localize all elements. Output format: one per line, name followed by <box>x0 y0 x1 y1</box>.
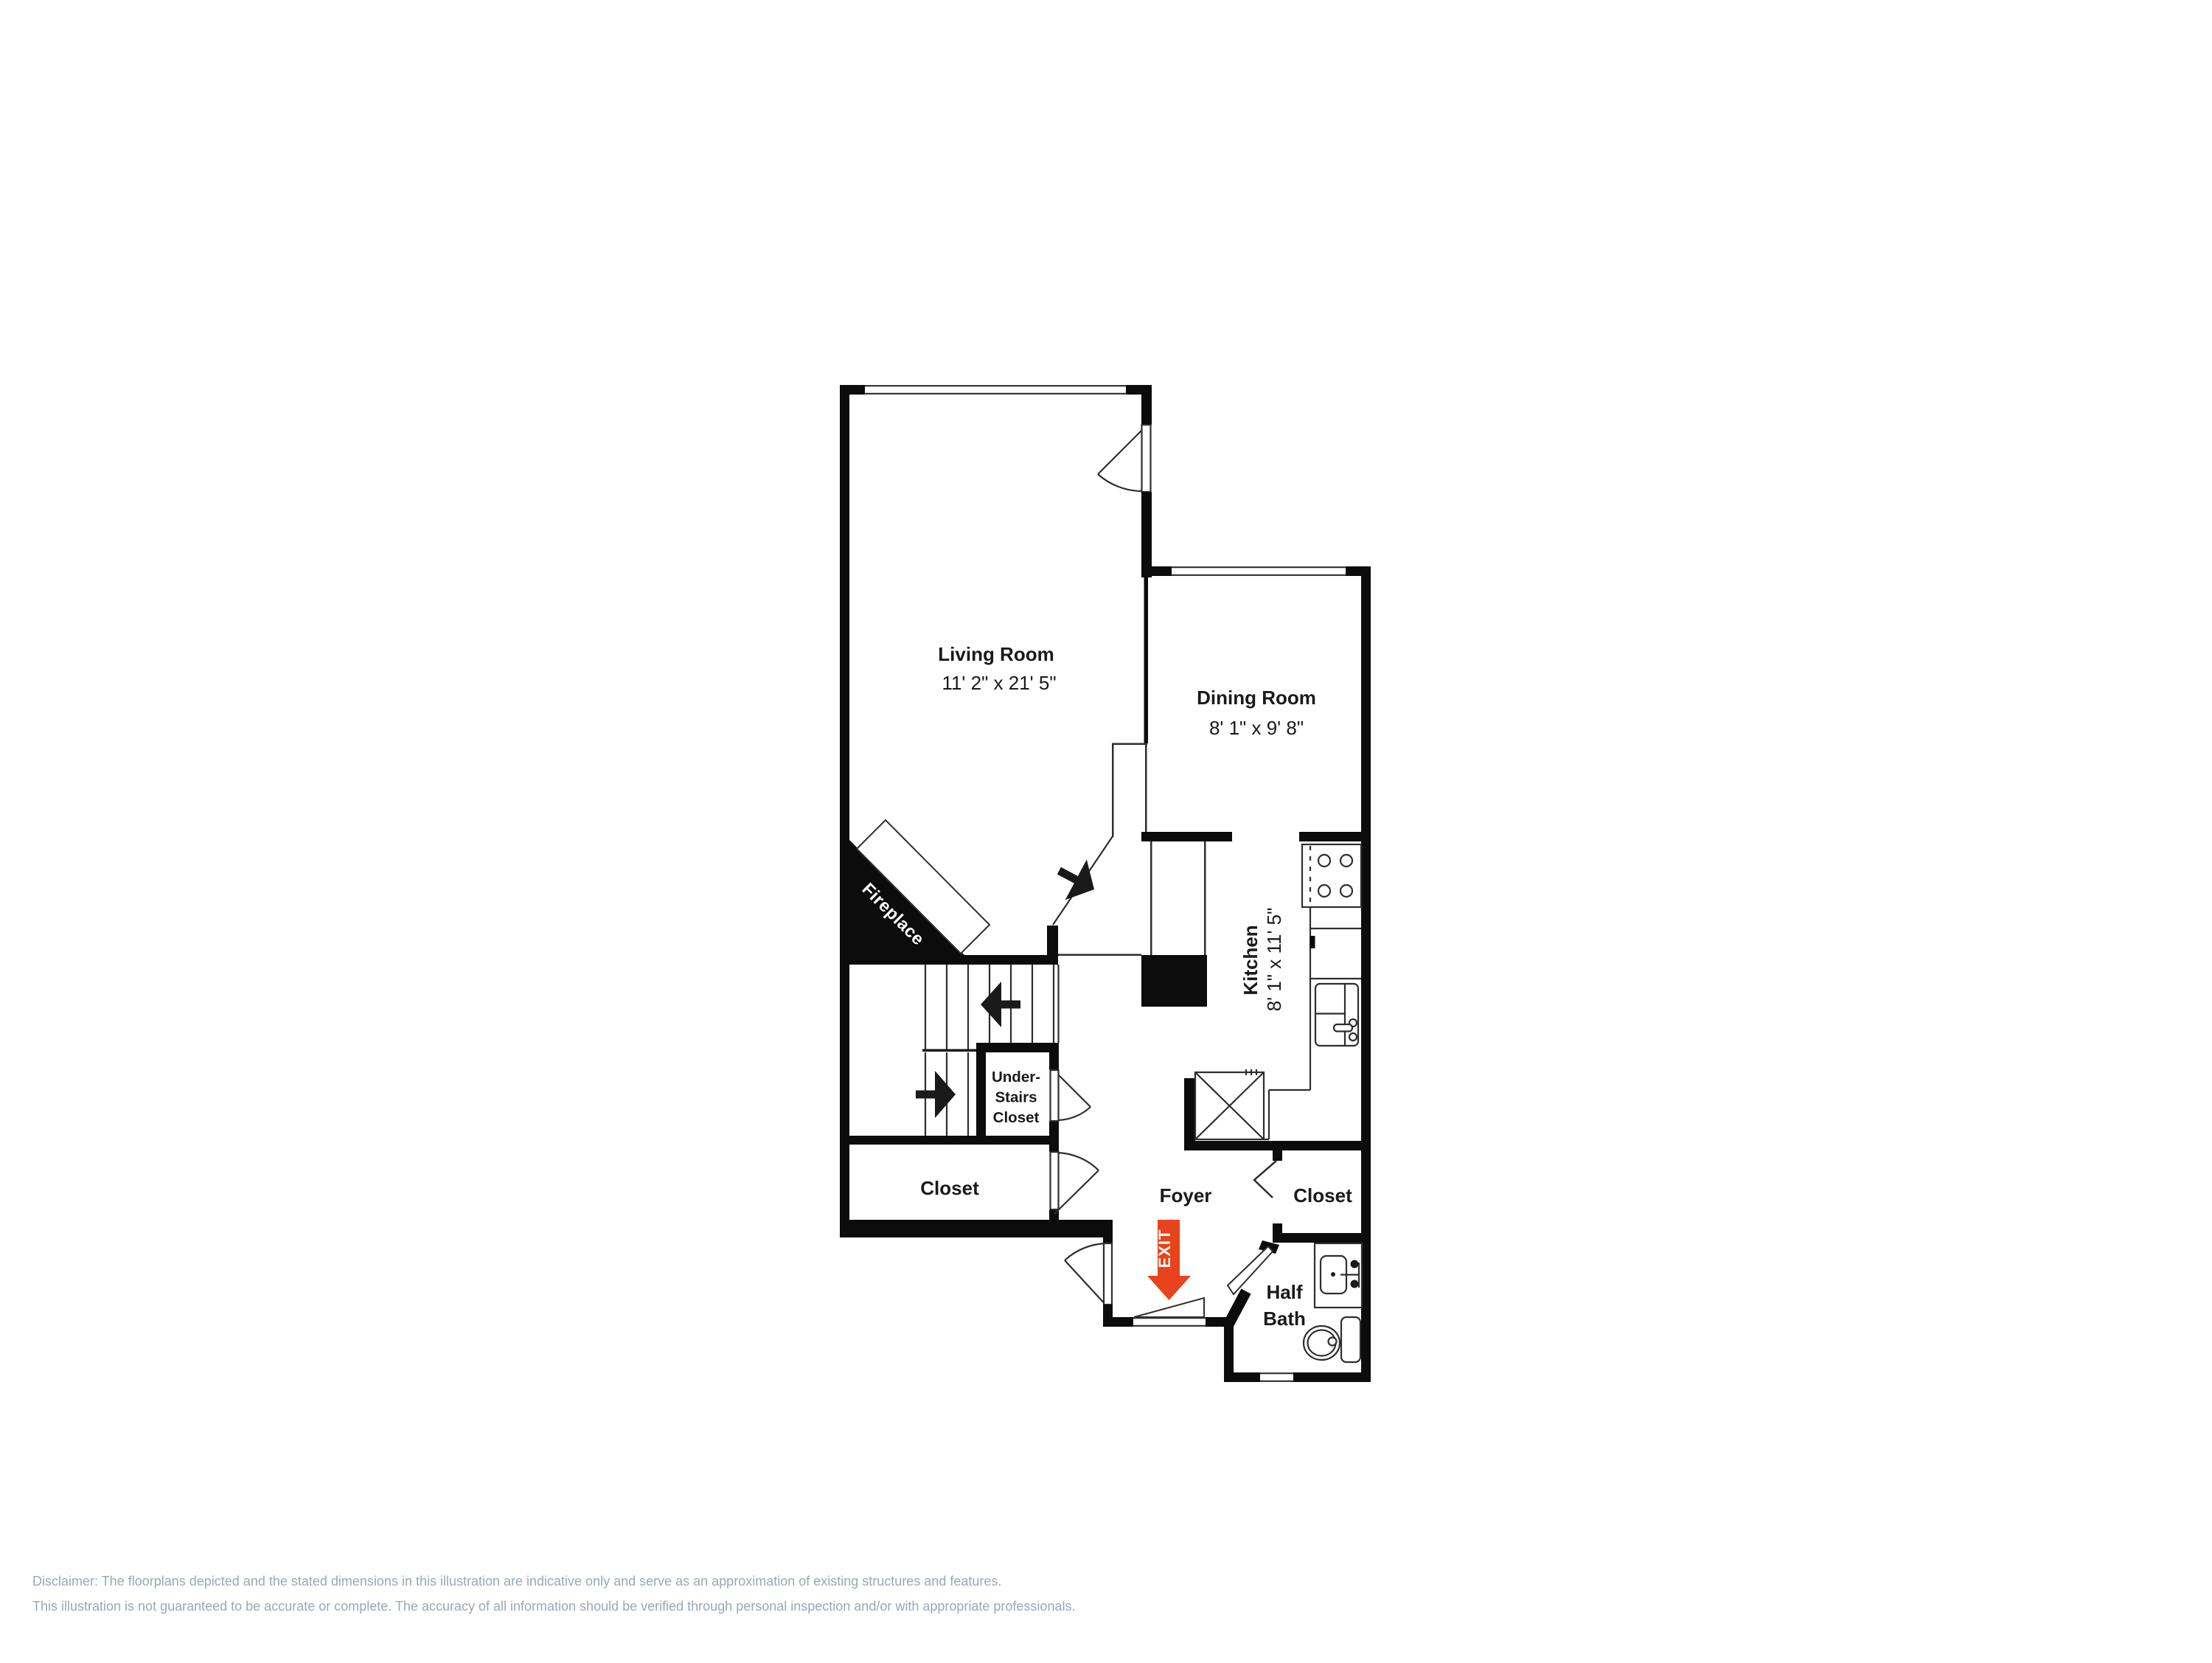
svg-text:8' 1" x 11' 5": 8' 1" x 11' 5" <box>1263 908 1285 1012</box>
svg-text:Kitchen: Kitchen <box>1239 925 1262 995</box>
svg-text:Closet: Closet <box>1293 1184 1352 1207</box>
svg-text:Closet: Closet <box>993 1109 1040 1126</box>
svg-text:8' 1" x 9' 8": 8' 1" x 9' 8" <box>1209 717 1304 739</box>
svg-text:Under-: Under- <box>992 1069 1040 1086</box>
svg-text:Half: Half <box>1266 1281 1302 1303</box>
svg-text:Disclaimer: The floorplans dep: Disclaimer: The floorplans depicted and … <box>32 1574 1001 1589</box>
svg-text:Living Room: Living Room <box>938 643 1054 665</box>
svg-text:Bath: Bath <box>1263 1308 1306 1330</box>
svg-text:Stairs: Stairs <box>995 1089 1037 1106</box>
svg-text:11' 2" x 21' 5": 11' 2" x 21' 5" <box>942 672 1056 694</box>
svg-text:Closet: Closet <box>920 1177 979 1199</box>
svg-text:EXIT: EXIT <box>1155 1229 1174 1268</box>
svg-text:Dining Room: Dining Room <box>1197 687 1316 709</box>
svg-text:This illustration is not guara: This illustration is not guaranteed to b… <box>32 1599 1075 1614</box>
svg-text:Foyer: Foyer <box>1160 1184 1212 1207</box>
